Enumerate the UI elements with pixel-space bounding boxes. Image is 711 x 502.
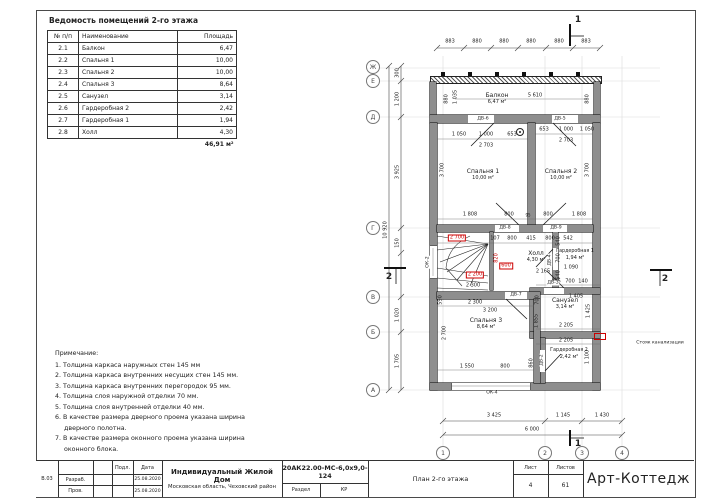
dim-label: 700 [565, 280, 575, 285]
axis-bubble-left: А [366, 383, 380, 397]
role-label: Разраб. [66, 477, 86, 483]
dim-label: 883 [581, 40, 591, 45]
revision-mark [594, 333, 606, 340]
dim-label: 140 [578, 280, 588, 285]
date-header: Дата [141, 465, 154, 471]
dim-label: 1 100 [586, 350, 591, 364]
section-label-cell: Раздел [282, 483, 321, 497]
axis-bubble-bottom: 1 [436, 446, 450, 460]
dim-label-red: 820 [495, 253, 500, 263]
date-header-cell: Дата [133, 461, 163, 475]
window-tag: ОК-4 [485, 391, 498, 396]
dim-label: 10 920 [384, 221, 389, 239]
project-name: Индивидуальный Жилой Дом [162, 468, 282, 484]
dim-label: 107 [490, 237, 500, 242]
room-area: 8,64 м² [470, 324, 502, 330]
room-name: Гардеробная 1 [556, 249, 594, 254]
empty-cell [58, 461, 94, 475]
axis-label: Ж [370, 64, 376, 71]
axis-label: Б [371, 329, 375, 336]
dim-label: 653 [539, 128, 549, 133]
axis-bubble-left: Ж [366, 60, 380, 74]
axis-label: 2 [543, 450, 547, 457]
dim-label: 300 [396, 68, 401, 78]
dim-label-red: 600 [499, 263, 513, 270]
dim-label: 590 [439, 295, 444, 305]
dim-label: 2 165 [536, 270, 550, 275]
dim-label: 800 [543, 213, 553, 218]
company-name: Арт-Коттедж [587, 471, 690, 487]
section-label: Раздел [292, 487, 310, 493]
room-area: 3,14 м² [552, 304, 578, 310]
dim-label: 800 [507, 237, 517, 242]
room-area: 1,94 м² [556, 255, 594, 261]
dim-label: 1 855 [535, 314, 540, 328]
room-name: Спальня 1 [467, 168, 499, 175]
door-tag: ДВ-5 [553, 117, 566, 122]
room-area: 2,42 м² [550, 354, 588, 360]
room-name: Спальня 2 [545, 168, 577, 175]
sheets-number-cell: 61 [548, 474, 584, 497]
dim-label: 800 [504, 213, 514, 218]
dim-label: 3 200 [483, 309, 497, 314]
axis-bubble-bottom: 2 [538, 446, 552, 460]
door-tag: ДВ-6 [476, 117, 489, 122]
sheet-code-cell: В.03 [36, 461, 59, 497]
sheet-number: 4 [529, 482, 533, 489]
dim-label: 1 090 [564, 266, 578, 271]
dim-label: 700 [536, 295, 541, 305]
dim-label: 1 405 [569, 295, 583, 300]
dim-label: 653 [507, 133, 517, 138]
dim-label: 1 200 [396, 92, 401, 106]
date-cell: 25.08.2020 [133, 485, 163, 497]
section-mark-number: 1 [575, 439, 581, 449]
role-cell: Пров. [58, 485, 94, 497]
dim-label: 6 000 [525, 428, 539, 433]
section-mark-number: 1 [575, 15, 581, 25]
window-tag: ОК-2 [426, 255, 431, 268]
room-name: Балкон [486, 92, 509, 99]
door-tag: ДВ-4 [548, 253, 553, 266]
axis-bubble-left: Г [366, 221, 380, 235]
dim-label: 2 205 [559, 339, 573, 344]
dim-label: 880 [586, 94, 591, 104]
signature-cell [112, 485, 134, 497]
sheets-label-cell: Листов [548, 461, 584, 475]
axis-label: А [371, 387, 375, 394]
dim-label: 880 [445, 94, 450, 104]
dim-label: 3 925 [396, 165, 401, 179]
signature-header: Подл. [115, 465, 130, 471]
dim-label: 880 [554, 40, 564, 45]
dim-label: 540 [557, 270, 562, 280]
dim-label: 800 [500, 365, 510, 370]
room-name: Холл [528, 250, 543, 257]
sewer-stack-note: Стояк канализации [636, 341, 683, 346]
sheet-number-cell: 4 [513, 474, 549, 497]
dim-label: 1 430 [595, 414, 609, 419]
dim-label: 415 [526, 237, 536, 242]
room-name: Спальня 3 [470, 317, 502, 324]
dim-label: 1 050 [580, 128, 594, 133]
dim-label: 540 [557, 236, 562, 246]
axis-bubble-left: Е [366, 74, 380, 88]
dim-label: 95 [525, 213, 530, 218]
axis-label: Е [371, 78, 375, 85]
sheet-title: План 2-го этажа [413, 475, 469, 483]
room-label: Гардеробная 22,42 м² [550, 347, 588, 360]
sheet-label: Лист [524, 465, 537, 471]
door-tag: ДВ-7 [509, 293, 522, 298]
dim-label: 1 000 [559, 128, 573, 133]
dim-label: 1 425 [587, 304, 592, 318]
dim-label: 2 700 [443, 326, 448, 340]
room-label: Балкон6,47 м² [486, 92, 509, 105]
dim-label: 2 703 [559, 139, 573, 144]
room-area: 10,00 м² [545, 175, 577, 181]
dim-label: 880 [526, 40, 536, 45]
dim-label: 2 300 [468, 301, 482, 306]
dim-label: 3 700 [586, 163, 591, 177]
dim-label: 1 020 [396, 308, 401, 322]
dim-label-red: 2 700 [448, 235, 466, 242]
dim-label: 1 035 [454, 90, 459, 104]
room-label: Спальня 210,00 м² [545, 168, 577, 181]
dim-label: 150 [396, 238, 401, 248]
room-area: 6,47 м² [486, 99, 509, 105]
doc-code: 20АК22.00-МС-6,0х9,0-124 [282, 464, 368, 480]
room-label: Холл4,30 м² [527, 250, 546, 263]
sheets-label: Листов [556, 465, 575, 471]
dim-label: 1 808 [572, 213, 586, 218]
dim-label-red: 2 200 [466, 272, 484, 279]
empty-cell [93, 461, 113, 475]
dim-label: 542 [563, 237, 573, 242]
dim-label: 1 000 [479, 133, 493, 138]
plan-linework [0, 0, 711, 502]
dim-label: 3 700 [441, 163, 446, 177]
dim-label: 2 703 [479, 144, 493, 149]
dim-label: 883 [445, 40, 455, 45]
axis-label: В [371, 294, 375, 301]
axis-label: Г [371, 225, 375, 232]
section-value-cell: КР [320, 483, 369, 497]
room-label: Гардеробная 11,94 м² [556, 248, 594, 261]
dim-label: 800 [545, 237, 555, 242]
dim-label: 2 205 [559, 324, 573, 329]
axis-label: 4 [620, 450, 624, 457]
section-mark-number: 2 [386, 272, 392, 282]
section-value: КР [341, 487, 348, 493]
door-tag: ДВ-2 [540, 353, 545, 366]
axis-label: 1 [441, 450, 445, 457]
dim-label: 860 [530, 358, 535, 368]
axis-bubble-left: В [366, 290, 380, 304]
sheet-code: В.03 [41, 476, 52, 482]
sheets-number: 61 [562, 482, 570, 489]
room-area: 10,00 м² [467, 175, 499, 181]
dim-label: 880 [472, 40, 482, 45]
room-name: Гардеробная 2 [550, 348, 588, 353]
room-label: Спальня 110,00 м² [467, 168, 499, 181]
axis-bubble-left: Б [366, 325, 380, 339]
door-tag: ДВ-3 [546, 281, 559, 286]
dim-label: 700 [557, 253, 562, 263]
axis-bubble-left: Д [366, 110, 380, 124]
project-location: Московская область, Чеховский район [168, 484, 276, 491]
date-value: 25.08.2020 [134, 477, 160, 482]
dim-label: 880 [499, 40, 509, 45]
door-tag: ДВ-9 [549, 226, 562, 231]
dim-label: 3 425 [487, 414, 501, 419]
project-cell: Индивидуальный Жилой Дом Московская обла… [162, 461, 283, 497]
dim-label: 1 145 [556, 414, 570, 419]
date-value: 25.08.2020 [134, 489, 160, 494]
room-area: 4,30 м² [527, 257, 546, 263]
role-label: Пров. [68, 488, 83, 494]
dim-label: 2 300 [466, 284, 480, 289]
dim-label: 5 610 [528, 94, 542, 99]
room-label: Спальня 38,64 м² [470, 317, 502, 330]
section-mark-number: 2 [662, 274, 668, 284]
sheet-title-cell: План 2-го этажа [368, 461, 514, 497]
dim-label: 1 050 [452, 133, 466, 138]
axis-label: Д [371, 114, 376, 121]
signature-header-cell: Подл. [112, 461, 134, 475]
doc-code-cell: 20АК22.00-МС-6,0х9,0-124 [282, 461, 369, 484]
dim-label: 1 550 [460, 365, 474, 370]
company-cell: Арт-Коттедж [583, 461, 694, 497]
dim-label: 1 808 [463, 213, 477, 218]
door-tag: ДВ-8 [498, 226, 511, 231]
empty-cell [93, 485, 113, 497]
axis-label: 3 [580, 450, 584, 457]
dim-label: 1 705 [396, 354, 401, 368]
axis-bubble-bottom: 4 [615, 446, 629, 460]
title-block: В.03 Разраб. Пров. Подл. Дата 25.08.2020… [36, 460, 694, 497]
vent-symbol [516, 128, 524, 136]
sheet-label-cell: Лист [513, 461, 549, 475]
